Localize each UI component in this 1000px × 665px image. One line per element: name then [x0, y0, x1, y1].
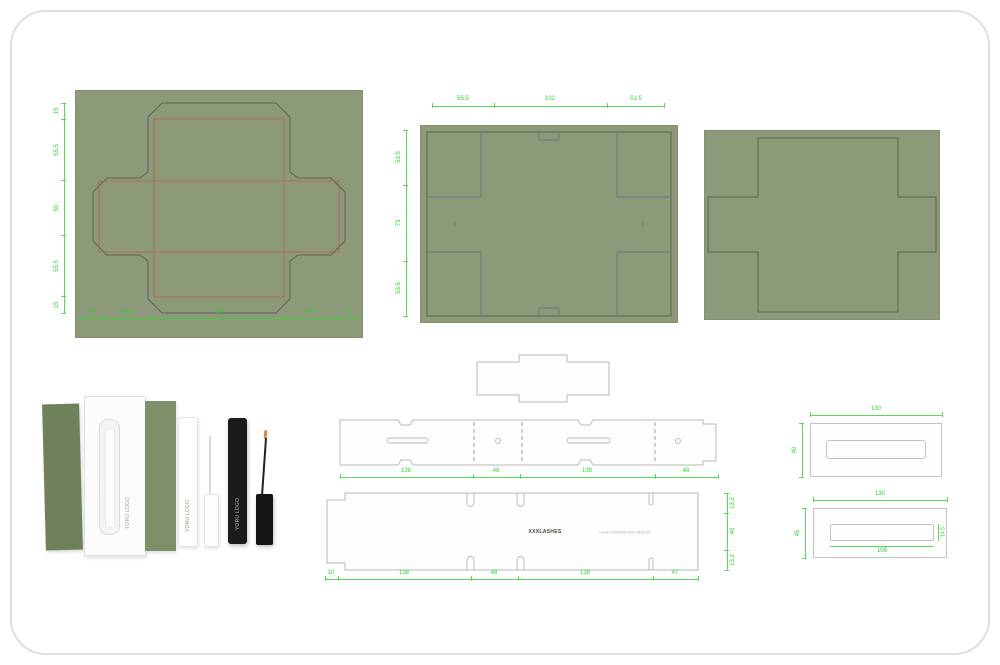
inner-sleeve-dieline — [340, 420, 718, 465]
lid-wrap-dieline-panel — [75, 90, 363, 338]
tray2-left-dim-line — [805, 508, 806, 558]
base-wrap-dieline-panel — [420, 125, 678, 323]
dim-tick — [403, 185, 408, 186]
dim-tick — [153, 315, 154, 320]
dim-tick — [61, 313, 66, 314]
photo-box-side-flap — [145, 401, 176, 551]
dim-tick — [61, 119, 66, 120]
photo-box-lid-panel — [42, 404, 83, 551]
belt-piece-dieline — [477, 355, 609, 402]
tray2-window-height-dim-line — [938, 524, 939, 541]
panel-b-dim: 55.5 — [457, 96, 469, 102]
panel-a-dim: 15 — [54, 302, 60, 309]
dim-tick — [518, 576, 519, 581]
photo-black-tube: YORU LOGO — [228, 418, 247, 544]
dim-tick — [403, 316, 408, 317]
tray2-dim: 130 — [875, 491, 885, 497]
photo-white-tube-logo: YORU LOGO — [185, 480, 191, 532]
window-tray-2-cutout — [830, 524, 934, 541]
dim-tick — [607, 103, 608, 108]
tray2-dim: 45 — [795, 530, 801, 537]
dim-tick — [336, 315, 337, 320]
dim-tick — [61, 180, 66, 181]
dim-tick — [61, 235, 66, 236]
panel-a-dim: 15 — [89, 309, 96, 315]
sleeve-print-brand: XXXLASHES — [529, 529, 562, 535]
dim-tick — [799, 423, 804, 424]
tray-wrap-cut-drawing — [704, 130, 940, 320]
dim-tick — [813, 497, 814, 502]
dim-tick — [432, 103, 433, 108]
dim-tick — [799, 477, 804, 478]
dim-tick — [494, 103, 495, 108]
strip2-dim: 13.2 — [730, 554, 736, 566]
dim-tick — [325, 576, 326, 581]
tray1-left-dim-line — [802, 423, 803, 477]
tray2-window-width-dim-line — [830, 546, 934, 547]
dim-tick — [340, 474, 341, 479]
photo-brush-stem — [261, 438, 267, 496]
photo-tube-in-window — [105, 428, 115, 528]
strip1-dim: 138 — [582, 468, 592, 474]
panel-b-dim: 51.5 — [630, 96, 642, 102]
panel-a-dim: 55.5 — [54, 144, 60, 156]
dim-tick — [61, 103, 66, 104]
dim-tick — [653, 576, 654, 581]
panel-a-dim: 50 — [54, 205, 60, 212]
dim-tick — [655, 474, 656, 479]
panel-a-dim: 38.5 — [122, 309, 134, 315]
panel-a-dim: 55.5 — [54, 260, 60, 272]
dim-tick — [724, 550, 729, 551]
photo-box-window — [99, 419, 120, 535]
panel-b-dim: 73 — [396, 220, 402, 227]
panel-a-bottom-dim-line — [82, 318, 356, 319]
dim-tick — [810, 412, 811, 417]
panel-a-dim: 98 — [216, 309, 223, 315]
dim-tick — [61, 296, 66, 297]
tray1-dim: 40 — [792, 447, 798, 454]
strip2-dim: 13.2 — [730, 497, 736, 509]
strip2-dim: 47 — [672, 570, 679, 576]
panel-b-dim: 102 — [545, 96, 555, 102]
dieline-design-sheet: 15 55.5 50 55.5 15 15 38.5 98 38.5 15 55… — [0, 0, 1000, 665]
tray2-dim: 105 — [877, 548, 887, 554]
strip2-right-dim-line — [727, 493, 728, 570]
dim-tick — [802, 558, 807, 559]
strip2-dim: 138 — [580, 570, 590, 576]
strip1-dim-line — [340, 477, 718, 478]
panel-b-dim: 53.5 — [396, 151, 402, 163]
sleeve-print-subtext: LASH ENHANCING SERUM — [599, 530, 650, 535]
dim-tick — [471, 576, 472, 581]
dim-tick — [284, 315, 285, 320]
strip2-dim: 138 — [399, 570, 409, 576]
strip2-bottom-dim-line — [325, 579, 698, 580]
lid-wrap-cut-crease-drawing — [75, 90, 363, 338]
panel-b-dim: 53.5 — [396, 282, 402, 294]
product-photo: YORU LOGO YORU LOGO YORU LOGO — [42, 392, 304, 572]
panel-a-left-dim-line — [64, 103, 65, 313]
tray1-dim: 130 — [871, 406, 881, 412]
dim-tick — [403, 261, 408, 262]
photo-black-tube-logo: YORU LOGO — [235, 478, 241, 530]
dim-tick — [942, 412, 943, 417]
dim-tick — [338, 576, 339, 581]
dim-tick — [520, 474, 521, 479]
photo-white-serum-bottle — [204, 494, 219, 547]
dim-tick — [802, 508, 807, 509]
panel-a-dim: 15 — [343, 309, 350, 315]
strip1-dim: 48 — [493, 468, 500, 474]
tray2-top-dim-line — [813, 500, 947, 501]
dim-tick — [724, 513, 729, 514]
tray-wrap-dieline-panel — [704, 130, 940, 320]
photo-white-tube: YORU LOGO — [178, 417, 198, 547]
dim-tick — [102, 315, 103, 320]
strip1-dim: 138 — [401, 468, 411, 474]
dim-tick — [403, 130, 408, 131]
dim-tick — [473, 474, 474, 479]
dim-tick — [724, 570, 729, 571]
dim-tick — [664, 103, 665, 108]
strip2-dim: 40 — [730, 528, 736, 535]
dim-tick — [718, 474, 719, 479]
dim-tick — [947, 497, 948, 502]
photo-black-serum-bottle — [256, 494, 273, 545]
window-tray-1-cutout — [826, 440, 926, 459]
dim-tick — [724, 493, 729, 494]
base-wrap-cut-crease-drawing — [420, 125, 678, 323]
outer-sleeve-dieline — [325, 492, 718, 577]
panel-b-left-dim-line — [406, 130, 407, 316]
panel-a-dim: 15 — [54, 108, 60, 115]
tray2-dim: 14.5 — [942, 527, 947, 537]
strip2-dim: 10 — [328, 570, 335, 576]
photo-open-box: YORU LOGO — [84, 396, 146, 556]
dim-tick — [356, 315, 357, 320]
strip2-dim: 48 — [491, 570, 498, 576]
strip1-dim: 48 — [683, 468, 690, 474]
panel-a-dim: 38.5 — [304, 309, 316, 315]
dim-tick — [82, 315, 83, 320]
tray1-top-dim-line — [810, 415, 942, 416]
dim-tick — [698, 576, 699, 581]
photo-wand-brush-stem — [209, 436, 211, 496]
panel-b-top-dim-line — [432, 106, 664, 107]
photo-box-logo-text: YORU LOGO — [125, 483, 131, 529]
